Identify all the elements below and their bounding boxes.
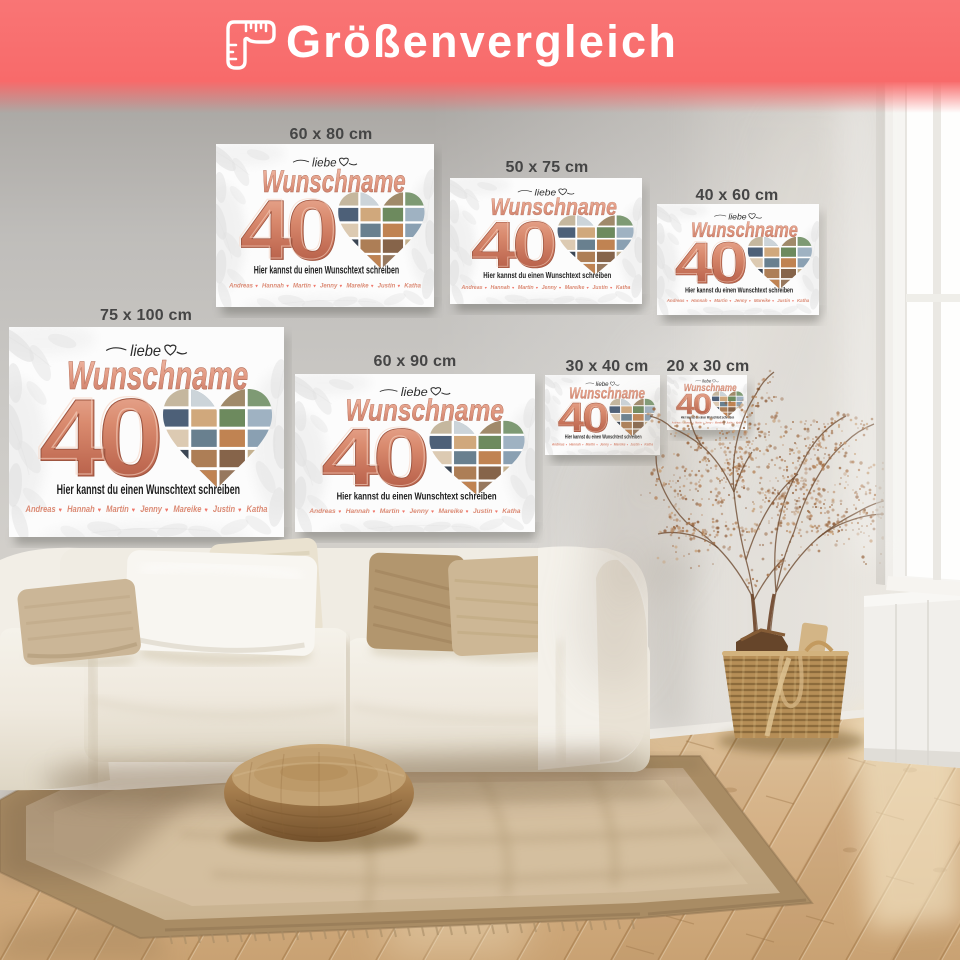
svg-text:30 x 40 cm: 30 x 40 cm — [566, 358, 649, 375]
svg-text:75 x 100 cm: 75 x 100 cm — [100, 307, 192, 324]
svg-text:50 x 75 cm: 50 x 75 cm — [506, 159, 589, 176]
svg-text:20 x 30 cm: 20 x 30 cm — [667, 358, 750, 375]
svg-text:60 x 90 cm: 60 x 90 cm — [374, 353, 457, 370]
svg-text:Größenvergleich: Größenvergleich — [286, 16, 678, 67]
svg-text:60 x 80 cm: 60 x 80 cm — [290, 126, 373, 143]
svg-text:40 x 60 cm: 40 x 60 cm — [696, 187, 779, 204]
